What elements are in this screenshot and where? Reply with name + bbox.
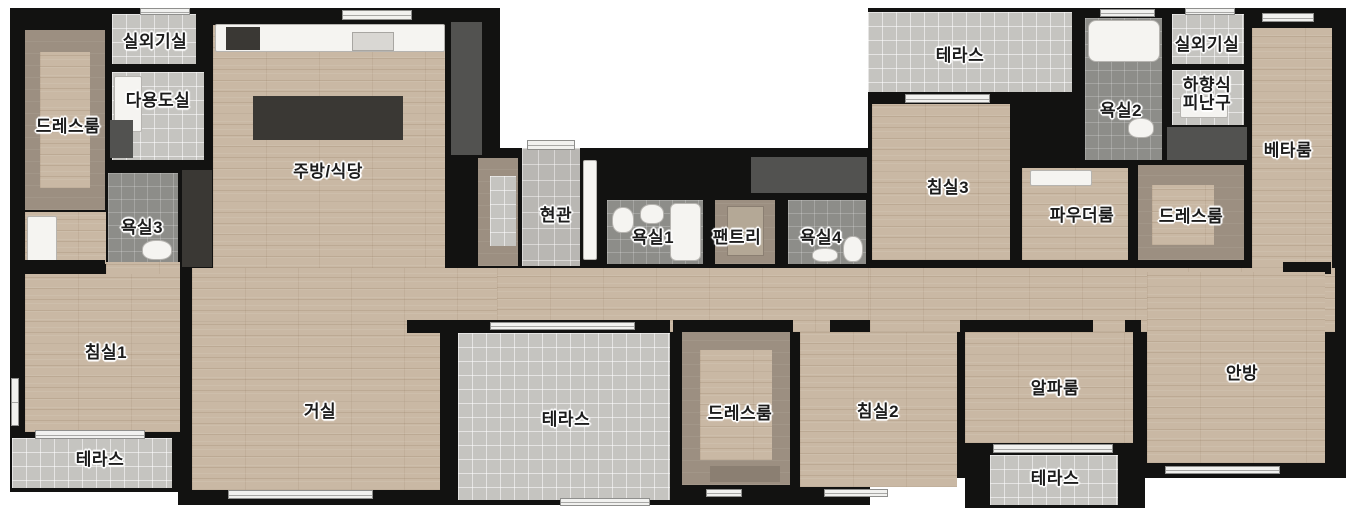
label-bed2: 침실2 bbox=[857, 403, 899, 421]
feature-box-kitchen-right bbox=[451, 22, 482, 155]
wall-alpha-top-stub bbox=[1125, 320, 1141, 332]
label-utility: 다용도실 bbox=[126, 92, 191, 110]
label-escape-line1: 하향식 bbox=[1183, 77, 1231, 95]
wall-alpha-top bbox=[960, 320, 1093, 332]
label-terrace-mid: 테라스 bbox=[542, 411, 590, 429]
feature-box-right bbox=[1167, 127, 1247, 160]
window-dress-bottom bbox=[706, 489, 742, 497]
cooktop bbox=[226, 27, 260, 50]
label-kitchen: 주방/식당 bbox=[293, 163, 363, 181]
entrance-door bbox=[527, 140, 575, 150]
window-master-bottom bbox=[1165, 466, 1280, 474]
label-escape-line2: 피난구 bbox=[1183, 95, 1231, 113]
label-bed1: 침실1 bbox=[85, 344, 127, 362]
label-living: 거실 bbox=[304, 403, 336, 421]
label-terrace-top: 테라스 bbox=[936, 47, 984, 65]
hall-left bbox=[192, 268, 497, 322]
label-bath2: 욕실2 bbox=[1100, 102, 1142, 120]
window-kitchen-top bbox=[342, 10, 412, 20]
toilet bbox=[1128, 118, 1154, 138]
window-alpha-bottom bbox=[993, 444, 1113, 453]
label-bed3: 침실3 bbox=[927, 179, 969, 197]
shoe-cabinet-inner bbox=[490, 176, 516, 246]
entrance-storage bbox=[583, 160, 597, 260]
label-dress-right: 드레스룸 bbox=[1159, 208, 1224, 226]
feature-box-mid bbox=[751, 157, 867, 193]
label-terrace-br: 테라스 bbox=[1031, 470, 1079, 488]
dress-bottom-cabinet bbox=[710, 466, 780, 482]
window-bed2-bottom bbox=[824, 489, 888, 497]
bathtub bbox=[1088, 20, 1160, 62]
exterior-cutout-bottom-left bbox=[0, 492, 178, 512]
window-terrace-mid-bottom bbox=[560, 498, 650, 506]
kitchen-island bbox=[253, 96, 403, 140]
label-powder: 파우더룸 bbox=[1050, 207, 1115, 225]
feature-box-left bbox=[110, 120, 133, 158]
label-pantry: 팬트리 bbox=[713, 229, 761, 247]
label-dress-bottom: 드레스룸 bbox=[708, 405, 773, 423]
wall-dress-bottom-top bbox=[673, 320, 793, 332]
kitchen-sink bbox=[352, 32, 394, 51]
label-bath1: 욕실1 bbox=[632, 229, 674, 247]
bathtub bbox=[670, 203, 701, 261]
label-entrance: 현관 bbox=[540, 207, 572, 225]
window-terrace-bl bbox=[35, 430, 145, 439]
wall-bed1-top bbox=[25, 260, 105, 274]
floor-plan: 실외기실 다용도실 드레스룸 욕실3 주방/식당 현관 욕실1 팬트리 욕실4 … bbox=[0, 0, 1354, 512]
window-bed1-left bbox=[11, 378, 19, 426]
window-outdoor-right-top bbox=[1185, 8, 1235, 15]
closet-left bbox=[27, 216, 57, 264]
toilet bbox=[612, 207, 634, 233]
label-terrace-bl: 테라스 bbox=[76, 451, 124, 469]
window-living-bottom bbox=[228, 490, 373, 499]
window-bath2-top bbox=[1100, 9, 1155, 17]
label-escape-hatch: 하향식 피난구 bbox=[1183, 77, 1231, 114]
toilet bbox=[142, 240, 172, 260]
window-outdoor-left-top bbox=[140, 8, 190, 15]
label-bath4: 욕실4 bbox=[800, 229, 842, 247]
label-master: 안방 bbox=[1226, 365, 1258, 383]
label-dress-left: 드레스룸 bbox=[36, 118, 101, 136]
window-bed3-terrace bbox=[905, 94, 990, 103]
label-outdoor-right: 실외기실 bbox=[1175, 36, 1240, 54]
window-terrace-mid-top bbox=[490, 322, 635, 330]
sink bbox=[640, 204, 664, 224]
sink bbox=[812, 248, 838, 262]
label-alpha: 알파룸 bbox=[1031, 380, 1079, 398]
wardrobe-dark bbox=[182, 170, 212, 267]
powder-vanity bbox=[1030, 170, 1092, 186]
label-beta: 베타룸 bbox=[1264, 142, 1312, 160]
toilet bbox=[843, 236, 863, 262]
room-kitchen-dining bbox=[213, 25, 445, 290]
window-beta-top bbox=[1262, 13, 1314, 22]
label-bath3: 욕실3 bbox=[121, 219, 163, 237]
label-outdoor-left: 실외기실 bbox=[123, 33, 188, 51]
